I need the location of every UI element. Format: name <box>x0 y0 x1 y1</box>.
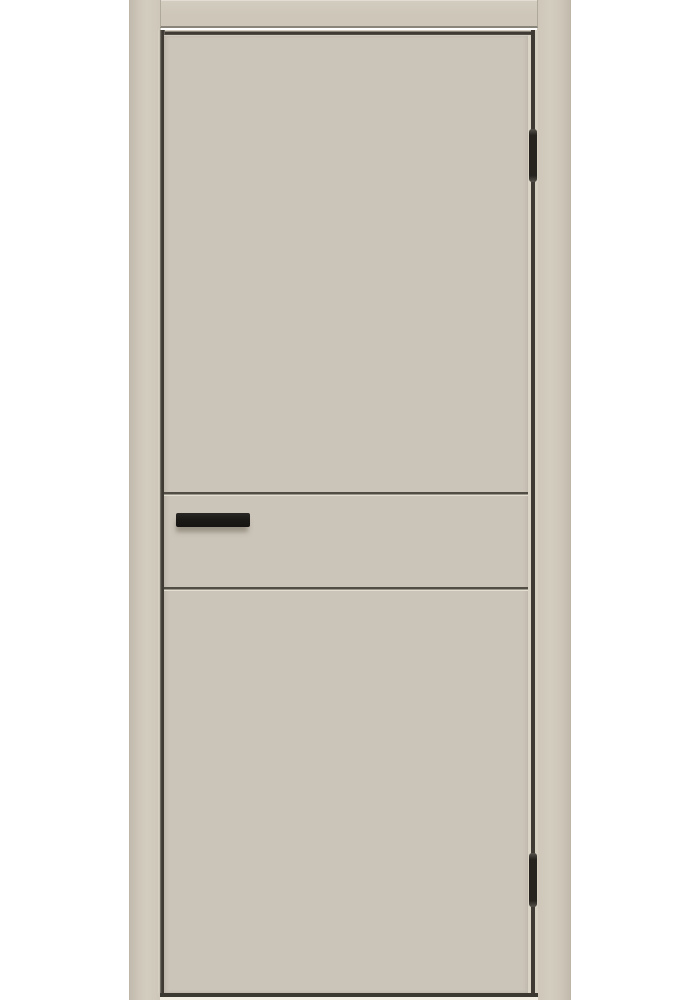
door-leaf <box>164 35 528 993</box>
lower-groove-line <box>164 587 528 591</box>
door-handle <box>176 513 250 527</box>
bottom-hinge <box>529 853 537 907</box>
door-frame-head <box>160 0 538 28</box>
upper-groove-line <box>164 492 528 496</box>
door-frame-right-jamb <box>537 0 571 1000</box>
door-product-photo <box>0 0 700 1000</box>
top-hinge <box>529 129 537 182</box>
door-frame-left-jamb <box>129 0 161 1000</box>
